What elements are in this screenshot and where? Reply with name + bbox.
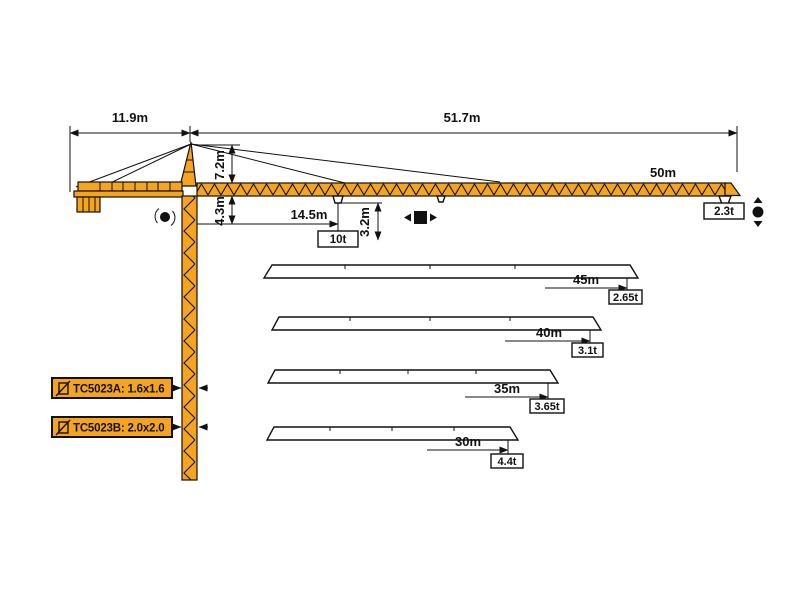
hoist-icon [753, 197, 764, 227]
jib-option-45m: 45m 2.65t [264, 265, 642, 304]
jib-length-40m-label: 40m [536, 325, 562, 340]
jib-option-35m: 35m 3.65t [268, 370, 564, 413]
jib-length-35m-label: 35m [494, 381, 520, 396]
tip-load-45m-label: 2.65t [613, 292, 638, 304]
tower-head-dimension: 7.2m [196, 145, 240, 183]
jib-length-30m-label: 30m [455, 434, 481, 449]
counterweight-block [77, 197, 100, 212]
counter-jib-length-label: 11.9m [112, 110, 148, 125]
tip-load-50m-label: 2.3t [714, 206, 734, 218]
counter-jib [74, 182, 183, 212]
trolley-travel-icon [404, 211, 437, 224]
diagram-svg: 11.9m 51.7m 50m [0, 0, 800, 600]
jib-total-length-label: 51.7m [444, 110, 481, 125]
trolley-hook2-icon [437, 196, 445, 202]
jib-length-50m-label: 50m [650, 165, 676, 180]
tower-mast [182, 196, 197, 480]
tip-load-35m-label: 3.65t [534, 401, 559, 413]
mast-section-b-label: TC5023B: 2.0x2.0 [73, 423, 164, 435]
jib-tip [725, 183, 740, 196]
tip-load-50m: 2.3t [704, 203, 744, 219]
tower-head-height-label: 7.2m [212, 150, 227, 180]
min-hook-radius-label: 14.5m [291, 207, 328, 222]
hook-height-range-label: 3.2m [357, 207, 372, 237]
tie-bars [76, 144, 500, 188]
tip-load-40m-label: 3.1t [578, 345, 597, 357]
main-jib: 50m [197, 165, 740, 204]
jib-option-30m: 30m 4.4t [267, 427, 523, 468]
top-dimension-lines: 11.9m 51.7m [70, 110, 737, 192]
crane-load-diagram: 11.9m 51.7m 50m [0, 0, 800, 600]
jib-to-slew-height-label: 4.3m [212, 196, 227, 226]
under-jib-dimension: 4.3m [212, 196, 232, 226]
slewing-icon [155, 209, 175, 226]
jib-length-45m-label: 45m [573, 272, 599, 287]
trolley-hook-icon [333, 196, 343, 203]
max-capacity-label: 10t [330, 234, 347, 246]
mast-section-a-label: TC5023A: 1.6x1.6 [73, 384, 164, 396]
tip-load-30m-label: 4.4t [498, 456, 517, 468]
jib-option-40m: 40m 3.1t [272, 317, 603, 357]
